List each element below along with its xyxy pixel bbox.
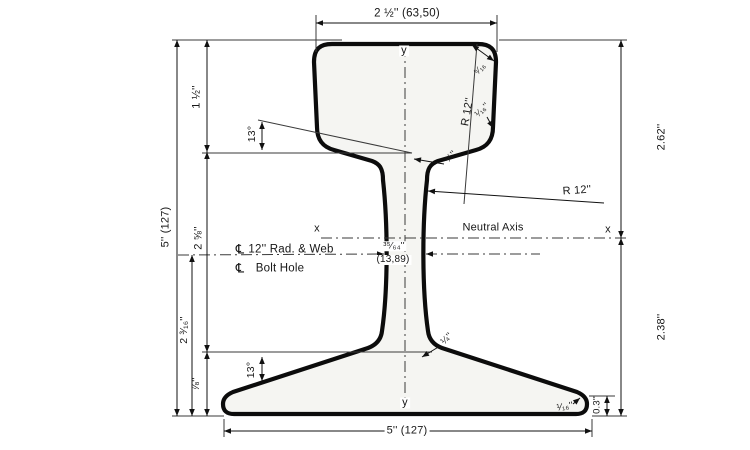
centerline-symbol-radweb: ℄ xyxy=(236,243,245,256)
dim-web-thickness-mm-label: (13,89) xyxy=(374,255,411,265)
radius-web-label: R 12'' xyxy=(562,185,591,198)
centerline-bolthole-label: Bolt Hole xyxy=(256,263,304,275)
dim-head-width-label: 2 ½'' (63,50) xyxy=(374,8,440,20)
angle-head-label: 13° xyxy=(247,126,258,142)
axis-x-left-label: x xyxy=(314,224,320,235)
axis-y-bottom-label: y xyxy=(400,398,410,409)
dim-above-na-label: 2.62'' xyxy=(657,124,668,151)
dim-head-depth-label: 1 ½'' xyxy=(192,85,203,109)
dim-base-depth-label: ⅞'' xyxy=(191,377,202,390)
rail-section-figure: 2 ½'' (63,50) 5'' (127) 1 ½'' 2 ⅝'' 2 ³⁄… xyxy=(0,0,750,450)
rail-section-drawing xyxy=(0,0,750,450)
centerline-symbol-bolthole: ℄ xyxy=(236,262,245,275)
dim-web-thickness-in-label: ³⁵⁄₆₄'' xyxy=(381,241,406,251)
neutral-axis-label: Neutral Axis xyxy=(462,223,523,234)
dim-base-width-label: 5'' (127) xyxy=(385,426,430,437)
dim-below-na-label: 2.38'' xyxy=(657,314,668,341)
dim-base-edge-height-label: 0.3'' xyxy=(592,396,602,414)
dim-overall-height-label: 5'' (127) xyxy=(161,207,172,248)
dim-cl-to-base-label: 2 ⅝'' xyxy=(194,226,205,250)
axis-x-right-label: x xyxy=(605,225,611,236)
angle-base-label: 13° xyxy=(246,362,257,378)
dim-web-span-label: 2 ³⁄₁₆'' xyxy=(179,316,190,343)
centerline-radweb-label: 12'' Rad. & Web xyxy=(248,244,333,256)
axis-y-top-label: y xyxy=(399,46,409,57)
